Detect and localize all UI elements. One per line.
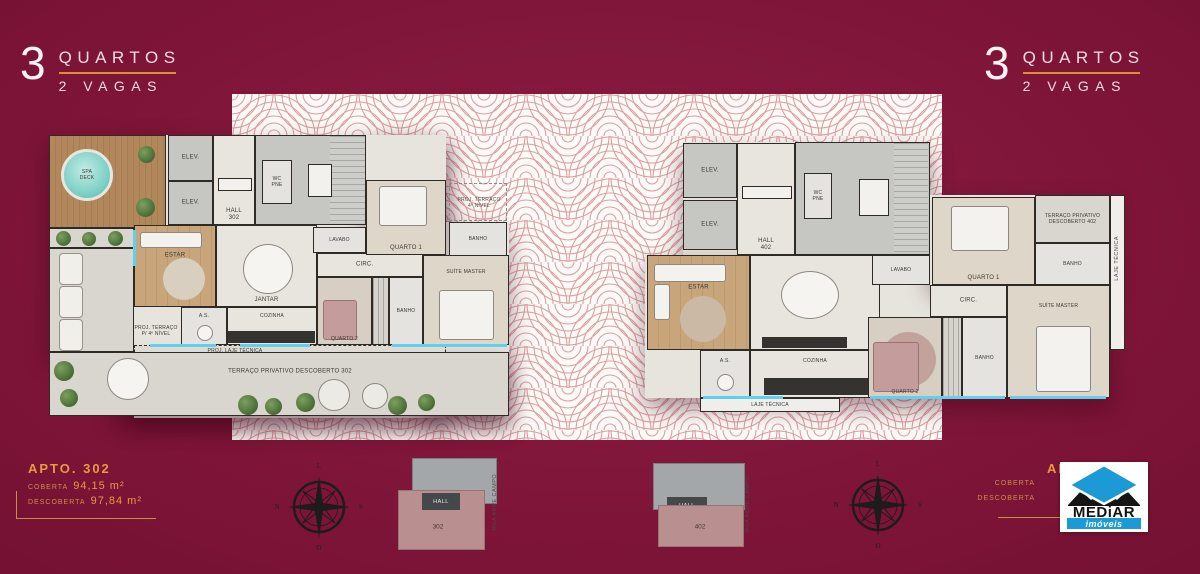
- proj-terraco-p-label: PROJ. TERRAÇOP/ 4º NÍVEL: [134, 325, 177, 338]
- plant: [136, 198, 155, 217]
- room-terrace-loungers: [49, 248, 134, 352]
- bed: [951, 206, 1009, 251]
- room-quarto1: QUARTO 1: [932, 197, 1035, 285]
- rug: [680, 296, 726, 342]
- street-label: RUA ABRE CAMPO: [745, 480, 751, 532]
- room-banho-quarto1: BANHO: [449, 222, 507, 256]
- room-banho-suite: BANHO: [389, 277, 423, 345]
- mediar-logo: MEDiAR imóveis: [1060, 462, 1148, 532]
- marketing-floorplan-page: 3 QUARTOS 2 VAGAS 3 QUARTOS 2 VAGAS SPAD…: [0, 0, 1200, 574]
- compass-east: L: [317, 462, 321, 470]
- sofa: [654, 284, 670, 320]
- room-estar: ESTAR: [647, 255, 750, 350]
- hall-label: HALL302: [214, 208, 254, 222]
- lounger: [59, 286, 83, 318]
- bed: [379, 186, 427, 226]
- rug: [163, 258, 205, 300]
- header-left: 3 QUARTOS 2 VAGAS: [20, 42, 181, 94]
- glass-rail: [870, 396, 1005, 399]
- compass-west: O: [875, 542, 880, 550]
- stairs: [330, 136, 365, 223]
- bedrooms-number: 3: [20, 42, 47, 86]
- room-elevator-2: ELEV.: [683, 200, 737, 250]
- room-elevator-1: ELEV.: [683, 143, 737, 198]
- stairs: [894, 143, 928, 253]
- lounger: [59, 253, 83, 285]
- elevator-cross: [308, 164, 332, 197]
- washer: [197, 325, 213, 341]
- parking-label: 2 VAGAS: [59, 78, 181, 94]
- lounger: [59, 319, 83, 351]
- room-quarto2: QUARTO 2: [317, 277, 372, 345]
- room-core-stairs: WCPNE: [795, 142, 930, 255]
- plant: [138, 146, 155, 163]
- terrace-table: [107, 358, 149, 400]
- kitchen-island: [762, 337, 847, 348]
- keyplan-unit-number: 402: [695, 524, 706, 531]
- bedrooms-number: 3: [984, 42, 1011, 86]
- glass-rail: [392, 344, 507, 347]
- room-estar: ESTAR: [134, 225, 216, 307]
- compass-rose-icon: [283, 471, 355, 543]
- room-circ: CIRC.: [930, 285, 1007, 317]
- laje-tecnica-strip-vertical: LAJE TÉCNICA: [1110, 195, 1125, 350]
- plant: [56, 231, 71, 246]
- parking-label: 2 VAGAS: [1023, 78, 1145, 94]
- dining-table: [781, 271, 839, 319]
- compass-west: O: [316, 544, 321, 552]
- kitchen-counter: [228, 331, 315, 343]
- sofa: [140, 232, 202, 248]
- plant: [54, 361, 74, 381]
- room-lavabo: LAVABO: [872, 255, 930, 285]
- plant: [238, 395, 258, 415]
- plant: [60, 389, 78, 407]
- room-suite-master: SUÍTE MASTER: [423, 255, 509, 345]
- glass-rail: [703, 396, 783, 399]
- dining-table: [243, 244, 293, 294]
- room-wc-pne: WCPNE: [804, 173, 832, 219]
- terraco-402-label: TERRAÇO PRIVATIVODESCOBERTO 402: [1036, 213, 1109, 225]
- wc-pne-label: WCPNE: [805, 190, 831, 202]
- glass-rail: [150, 344, 216, 347]
- gold-corner-line: [16, 491, 156, 519]
- spa-label: SPADECK: [80, 169, 95, 182]
- bedrooms-label: QUARTOS: [1023, 48, 1145, 68]
- wc-pne-label: WCPNE: [263, 176, 291, 188]
- compass-north: N: [833, 501, 838, 509]
- closet: [942, 317, 962, 398]
- logo-tagline: imóveis: [1085, 519, 1122, 529]
- sofa: [654, 264, 726, 282]
- plant: [296, 393, 315, 412]
- terraco-302-label: TERRAÇO PRIVATIVO DESCOBERTO 302: [228, 368, 352, 376]
- room-banho-suite: BANHO: [962, 317, 1007, 398]
- room-circ: CIRC.: [317, 253, 423, 277]
- bed: [1036, 326, 1091, 392]
- room-as: A.S.: [700, 350, 750, 398]
- plant: [82, 232, 96, 246]
- room-terraco-402: TERRAÇO PRIVATIVODESCOBERTO 402: [1035, 195, 1110, 243]
- room-cozinha: COZINHA: [227, 307, 317, 345]
- proj-laje-label: PROJ. LAJE TÉCNICA: [208, 348, 263, 354]
- bridge-cross: [742, 186, 792, 199]
- compass-south: S: [359, 503, 363, 511]
- plant: [388, 396, 407, 415]
- laje-tecnica-strip: LAJE TÉCNICA: [700, 398, 840, 412]
- room-suite-master: SUÍTE MASTER: [1007, 285, 1110, 398]
- planter: [362, 383, 388, 409]
- room-elevator-2: ELEV.: [168, 181, 213, 225]
- plant: [108, 231, 123, 246]
- glass-rail: [1010, 396, 1106, 399]
- bed: [873, 342, 919, 392]
- proj-terraco-label: PROJ. TERRAÇO4º NÍVEL: [457, 197, 500, 210]
- room-terraco-302: [49, 352, 509, 416]
- compass-south: S: [918, 501, 922, 509]
- room-spa-deck: SPADECK: [49, 135, 166, 228]
- kitchen-counter: [764, 378, 868, 395]
- plant: [418, 394, 435, 411]
- mediar-roof-icon: [1060, 462, 1148, 506]
- glass-rail: [133, 230, 136, 266]
- washer: [717, 374, 734, 391]
- room-jantar: JANTAR: [750, 255, 880, 350]
- proj-terraco-area: PROJ. TERRAÇO4º NÍVEL: [449, 183, 507, 221]
- room-elevator-1: ELEV.: [168, 135, 213, 181]
- bed: [323, 300, 357, 340]
- keyplan-unit-number: 302: [433, 524, 444, 531]
- unit-title: APTO. 302: [28, 461, 111, 476]
- planter: [318, 379, 350, 411]
- room-hall: HALL402: [737, 143, 795, 255]
- room-lavabo: LAVABO: [313, 227, 366, 253]
- bridge-cross: [218, 178, 252, 191]
- plant: [265, 398, 282, 415]
- logo-tagline-bar: imóveis: [1067, 518, 1141, 529]
- room-banho-quarto1: BANHO: [1035, 243, 1110, 285]
- header-divider: [1023, 72, 1140, 74]
- glass-rail: [240, 344, 310, 347]
- room-core-stairs: WCPNE: [255, 135, 366, 225]
- bed: [439, 290, 494, 340]
- bedrooms-label: QUARTOS: [59, 48, 181, 68]
- area-label: DESCOBERTA: [977, 495, 1035, 502]
- area-label: COBERTA: [995, 480, 1035, 487]
- compass-north: N: [274, 503, 279, 511]
- elevator-cross: [859, 179, 889, 216]
- keyplan-hall: HALL: [422, 493, 460, 510]
- street-label: RUA ABRE CAMPO: [492, 478, 498, 530]
- room-cozinha: COZINHA: [750, 350, 880, 398]
- room-quarto1: QUARTO 1: [366, 180, 446, 255]
- planter-strip: [49, 228, 134, 248]
- header-right: 3 QUARTOS 2 VAGAS: [984, 42, 1145, 94]
- room-jantar: JANTAR: [216, 225, 317, 307]
- room-wc-pne: WCPNE: [262, 160, 292, 204]
- closet: [372, 277, 389, 345]
- header-divider: [59, 72, 176, 74]
- room-quarto2: QUARTO 2: [868, 317, 942, 398]
- room-as: A.S.: [181, 307, 227, 345]
- compass-rose-icon: [842, 469, 914, 541]
- area-label: COBERTA: [28, 484, 68, 491]
- hall-label: HALL402: [738, 238, 794, 252]
- compass-east: L: [876, 460, 880, 468]
